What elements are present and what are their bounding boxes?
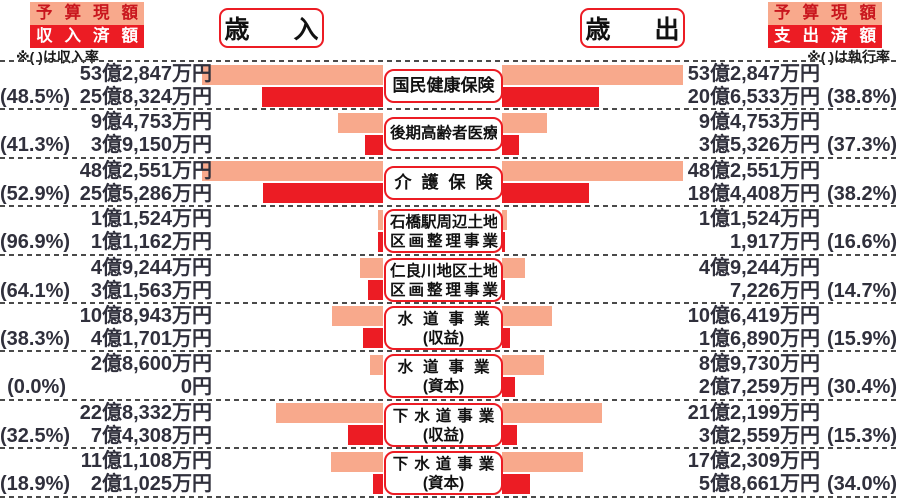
fund-label-line: 水道事業: [390, 310, 507, 329]
expense-spent-amount: 5億8,661万円: [502, 473, 820, 496]
expense-budget-amount: 9億4,753万円: [502, 111, 820, 134]
fund-label-line: 下水道事業: [390, 455, 503, 474]
fund-label-line: (収益): [390, 329, 497, 348]
fund-row: 11億1,108万円(18.9%)2億1,025万円下水道事業(資本)17億2,…: [0, 449, 900, 497]
fund-label-line: 水道事業: [390, 358, 507, 377]
revenue-budget-amount: 53億2,847万円: [0, 63, 212, 86]
fund-label: 下水道事業(資本): [384, 451, 503, 495]
revenue-received-amount: 2億1,025万円: [66, 473, 212, 496]
expense-budget-legend-label: 予算現額: [774, 4, 882, 22]
expense-spent-line: 3億2,559万円(15.3%): [502, 425, 898, 448]
revenue-received-amount: 25億8,324万円: [66, 86, 212, 109]
revenue-budget-amount: 11億1,108万円: [0, 450, 212, 473]
revenue-budget-amount: 22億8,332万円: [0, 402, 212, 425]
revenue-received-bar: [262, 87, 383, 107]
expense-rate: (14.7%): [820, 280, 897, 303]
expense-spent-line: 18億4,408万円(38.2%): [502, 183, 898, 206]
fund-label: 石橋駅周辺土地区画整理事業: [384, 209, 503, 253]
expense-legend: 予算現額 支出済額: [768, 2, 882, 48]
expense-rate: (34.0%): [820, 473, 897, 496]
revenue-budget-legend: 予算現額: [30, 2, 144, 25]
fund-row: 1億1,524万円(96.9%)1億1,162万円石橋駅周辺土地区画整理事業1億…: [0, 207, 900, 255]
expense-budget-amount: 17億2,309万円: [502, 450, 820, 473]
fund-label: 水道事業(資本): [384, 354, 503, 398]
revenue-budget-amount: 1億1,524万円: [0, 208, 212, 231]
expense-spent-legend-label: 支出済額: [774, 27, 882, 45]
revenue-budget-bar: [370, 355, 383, 375]
expense-title: 歳出: [585, 10, 723, 46]
fund-rows: 53億2,847万円(48.5%)25億8,324万円国民健康保険53億2,84…: [0, 62, 900, 498]
expense-spent-amount: 1億6,890万円: [502, 328, 820, 351]
revenue-rate: (64.1%): [0, 280, 66, 303]
chart-header: 予算現額 収入済額 ※( )は収入率 歳入 歳出 予算現額 支出済額 ※( )は…: [0, 0, 900, 62]
expense-spent-legend: 支出済額: [768, 25, 882, 48]
fund-label: 国民健康保険: [384, 69, 503, 103]
revenue-rate: (48.5%): [0, 86, 66, 109]
fund-row: 9億4,753万円(41.3%)3億9,150万円後期高齢者医療9億4,753万…: [0, 110, 900, 158]
revenue-received-line: (38.3%)4億1,701万円: [0, 328, 212, 351]
revenue-budget-amount: 48億2,551万円: [0, 160, 212, 183]
expense-spent-line: 1億6,890万円(15.9%): [502, 328, 898, 351]
fund-row: 53億2,847万円(48.5%)25億8,324万円国民健康保険53億2,84…: [0, 62, 900, 110]
revenue-received-legend: 収入済額: [30, 25, 144, 48]
expense-rate: (38.8%): [820, 86, 897, 109]
fund-label-line: 区画整理事業: [390, 232, 500, 251]
fund-label-line: 仁良川地区土地: [390, 262, 497, 281]
expense-spent-amount: 20億6,533万円: [502, 86, 820, 109]
fund-label-line: 後期高齢者医療: [390, 119, 497, 148]
revenue-budget-bar: [202, 161, 383, 181]
expense-spent-amount: 3億5,326万円: [502, 134, 820, 157]
expense-budget-amount: 1億1,524万円: [502, 208, 820, 231]
revenue-budget-amount: 4億9,244万円: [0, 257, 212, 280]
revenue-budget-bar: [338, 113, 383, 133]
expense-budget-amount: 4億9,244万円: [502, 257, 820, 280]
revenue-budget-bar: [202, 65, 383, 85]
revenue-budget-amount: 10億8,943万円: [0, 305, 212, 328]
revenue-budget-legend-label: 予算現額: [36, 4, 144, 22]
fund-row: 48億2,551万円(52.9%)25億5,286万円介護保険48億2,551万…: [0, 159, 900, 207]
revenue-budget-bar: [360, 258, 383, 278]
fund-label: 後期高齢者医療: [384, 117, 503, 151]
revenue-budget-bar: [378, 210, 383, 230]
fund-row: 22億8,332万円(32.5%)7億4,308万円下水道事業(収益)21億2,…: [0, 401, 900, 449]
expense-spent-line: 7,226万円(14.7%): [502, 280, 898, 303]
expense-spent-amount: 18億4,408万円: [502, 183, 820, 206]
expense-spent-line: 3億5,326万円(37.3%): [502, 134, 898, 157]
expense-spent-line: 5億8,661万円(34.0%): [502, 473, 898, 496]
revenue-rate: (41.3%): [0, 134, 66, 157]
revenue-budget-bar: [331, 452, 383, 472]
revenue-rate: (0.0%): [0, 376, 66, 399]
expense-budget-amount: 10億6,419万円: [502, 305, 820, 328]
expense-budget-legend: 予算現額: [768, 2, 882, 25]
revenue-budget-bar: [276, 403, 383, 423]
revenue-received-amount: 25億5,286万円: [66, 183, 212, 206]
revenue-received-amount: 1億1,162万円: [66, 231, 212, 254]
expense-spent-amount: 3億2,559万円: [502, 425, 820, 448]
expense-spent-amount: 7,226万円: [502, 280, 820, 303]
fund-label: 下水道事業(収益): [384, 403, 503, 447]
revenue-received-bar: [363, 328, 383, 348]
revenue-rate: (52.9%): [0, 183, 66, 206]
expense-rate: (38.2%): [820, 183, 897, 206]
fund-row: 2億8,600万円(0.0%)0円水道事業(資本)8億9,730万円2億7,25…: [0, 352, 900, 400]
expense-rate: (37.3%): [820, 134, 897, 157]
revenue-budget-bar: [332, 306, 383, 326]
revenue-received-bar: [373, 474, 383, 494]
revenue-received-amount: 7億4,308万円: [66, 425, 212, 448]
revenue-received-legend-label: 収入済額: [36, 27, 144, 45]
revenue-received-line: (96.9%)1億1,162万円: [0, 231, 212, 254]
expense-rate: (30.4%): [820, 376, 897, 399]
expense-spent-amount: 1,917万円: [502, 231, 820, 254]
fund-label-line: 下水道事業: [390, 407, 503, 426]
fund-label-line: 区画整理事業: [390, 281, 500, 300]
revenue-received-bar: [368, 280, 383, 300]
revenue-rate: (32.5%): [0, 425, 66, 448]
revenue-title: 歳入: [224, 10, 362, 46]
revenue-rate: (18.9%): [0, 473, 66, 496]
revenue-received-line: (0.0%)0円: [0, 376, 212, 399]
revenue-received-bar: [378, 232, 383, 252]
revenue-received-bar: [263, 183, 383, 203]
revenue-received-line: (64.1%)3億1,563万円: [0, 280, 212, 303]
revenue-received-line: (41.3%)3億9,150万円: [0, 134, 212, 157]
budget-balance-chart: 予算現額 収入済額 ※( )は収入率 歳入 歳出 予算現額 支出済額 ※( )は…: [0, 0, 900, 502]
revenue-received-amount: 3億9,150万円: [66, 134, 212, 157]
revenue-received-bar: [365, 135, 383, 155]
expense-spent-line: 1,917万円(16.6%): [502, 231, 898, 254]
expense-budget-amount: 48億2,551万円: [502, 160, 820, 183]
fund-label-line: 石橋駅周辺土地: [390, 213, 497, 232]
fund-label-line: (資本): [390, 377, 497, 396]
fund-label: 介護保険: [384, 166, 503, 200]
revenue-budget-amount: 2億8,600万円: [0, 353, 212, 376]
revenue-title-box: 歳入: [219, 8, 324, 48]
revenue-budget-amount: 9億4,753万円: [0, 111, 212, 134]
expense-title-box: 歳出: [580, 8, 685, 48]
revenue-received-line: (32.5%)7億4,308万円: [0, 425, 212, 448]
fund-label-line: (資本): [390, 474, 497, 493]
revenue-rate: (96.9%): [0, 231, 66, 254]
expense-budget-amount: 53億2,847万円: [502, 63, 820, 86]
revenue-received-line: (52.9%)25億5,286万円: [0, 183, 212, 206]
expense-rate: (15.3%): [820, 425, 897, 448]
expense-spent-line: 2億7,259万円(30.4%): [502, 376, 898, 399]
fund-label: 水道事業(収益): [384, 306, 503, 350]
expense-budget-amount: 8億9,730万円: [502, 353, 820, 376]
revenue-received-amount: 3億1,563万円: [66, 280, 212, 303]
revenue-received-line: (18.9%)2億1,025万円: [0, 473, 212, 496]
expense-budget-amount: 21億2,199万円: [502, 402, 820, 425]
revenue-legend: 予算現額 収入済額: [30, 2, 144, 48]
expense-spent-line: 20億6,533万円(38.8%): [502, 86, 898, 109]
revenue-received-amount: 0円: [66, 376, 212, 399]
fund-label-line: 国民健康保険: [390, 71, 497, 100]
fund-label-line: 介護保険: [390, 168, 507, 197]
fund-row: 4億9,244万円(64.1%)3億1,563万円仁良川地区土地区画整理事業4億…: [0, 256, 900, 304]
revenue-rate: (38.3%): [0, 328, 66, 351]
revenue-received-amount: 4億1,701万円: [66, 328, 212, 351]
revenue-received-bar: [348, 425, 383, 445]
expense-spent-amount: 2億7,259万円: [502, 376, 820, 399]
revenue-received-line: (48.5%)25億8,324万円: [0, 86, 212, 109]
fund-label-line: (収益): [390, 426, 497, 445]
expense-rate: (15.9%): [820, 328, 897, 351]
fund-row: 10億8,943万円(38.3%)4億1,701万円水道事業(収益)10億6,4…: [0, 304, 900, 352]
expense-rate: (16.6%): [820, 231, 897, 254]
fund-label: 仁良川地区土地区画整理事業: [384, 258, 503, 302]
